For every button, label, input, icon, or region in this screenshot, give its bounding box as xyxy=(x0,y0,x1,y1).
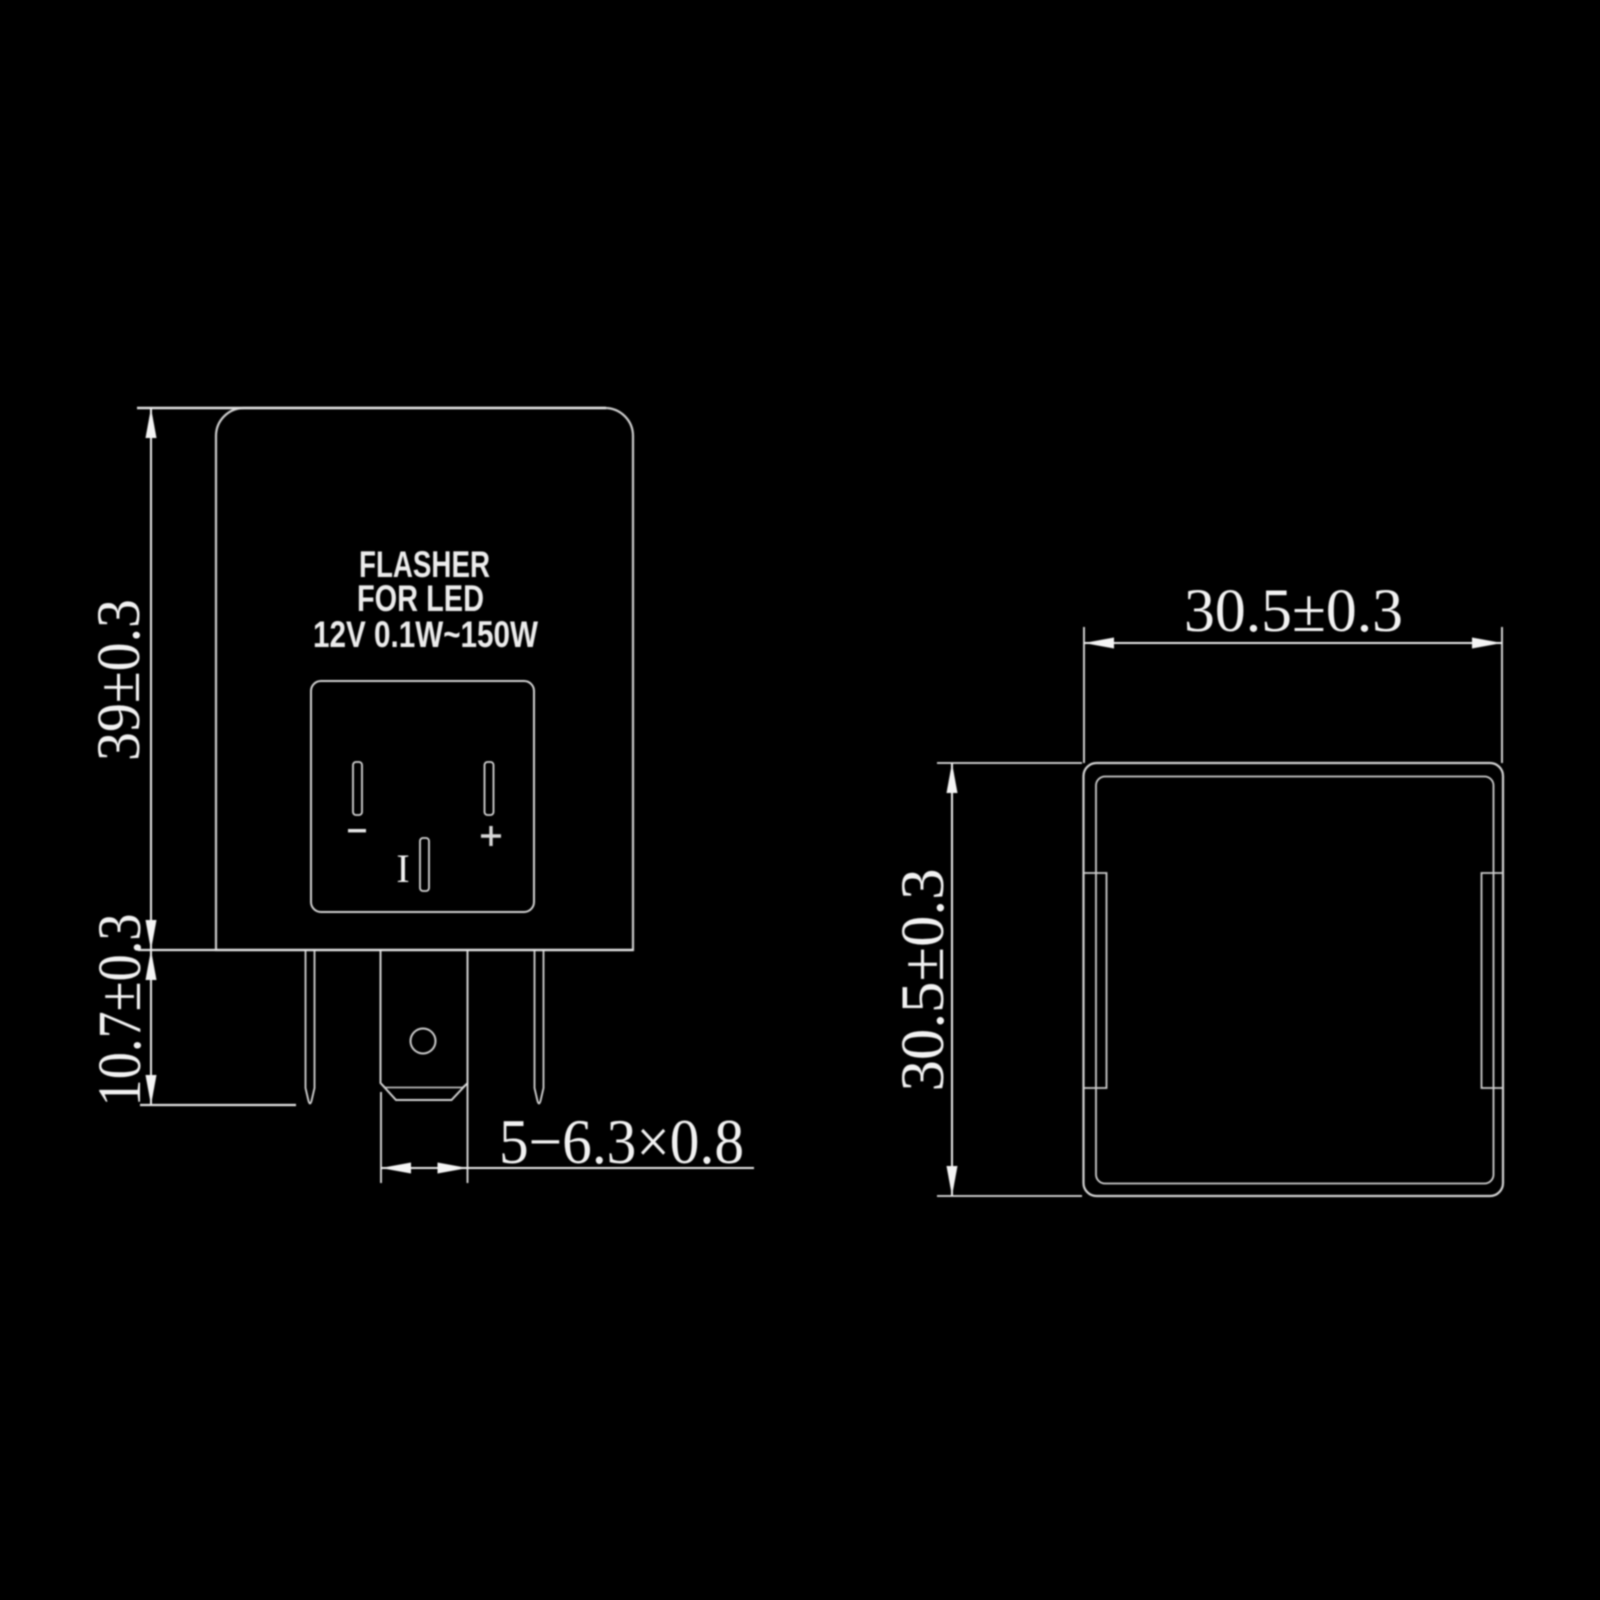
svg-text:12V 0.1W~150W: 12V 0.1W~150W xyxy=(313,614,538,655)
svg-text:5−6.3×0.8: 5−6.3×0.8 xyxy=(499,1106,744,1177)
svg-text:10.7±0.3: 10.7±0.3 xyxy=(87,914,154,1107)
svg-text:I: I xyxy=(396,846,409,891)
svg-text:30.5±0.3: 30.5±0.3 xyxy=(890,869,957,1092)
svg-text:30.5±0.3: 30.5±0.3 xyxy=(1184,578,1403,645)
svg-text:FOR LED: FOR LED xyxy=(357,578,484,619)
svg-text:39±0.3: 39±0.3 xyxy=(86,599,153,761)
